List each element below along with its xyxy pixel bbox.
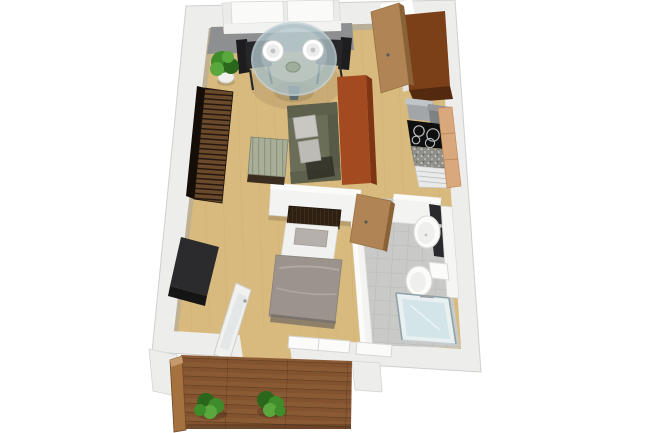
olive-sofa-pillow2 [298,139,321,163]
sink-drain [425,234,428,237]
shower-handle [420,296,434,297]
floorplan-render [0,0,650,433]
deck-plant-right-f4 [275,406,286,417]
dinner-plate-right [303,40,324,61]
balcony-door-handle [243,299,246,302]
white-sofa-cushion-right [287,0,334,22]
bathroom-door-knob [364,220,367,223]
deck-plant-left-f4 [194,404,206,416]
plate-right-center [311,48,316,53]
deck-edge-shading [184,424,351,429]
balcony-wall-stub-right [352,361,382,392]
balcony [170,355,352,432]
bathroom-door-open [350,194,395,252]
entry-door-knob [386,53,389,56]
orange-wardrobe [337,75,377,185]
plate-left-center [271,49,276,54]
coffee-table-top [248,137,288,177]
dinner-plate-left [263,41,284,62]
olive-sofa-pillow1 [293,115,318,139]
white-sofa-cushion-left [231,1,284,24]
toilet-seat [410,272,426,292]
table-centerpiece [286,62,300,72]
plant-foliage4 [222,51,234,63]
sink-bowl [418,222,435,244]
window-sill-right [356,342,392,357]
striped-coffee-table [247,137,288,185]
black-cooktop [407,120,445,149]
glass-shower [396,293,456,344]
olive-sofa [287,102,341,184]
plant-foliage3 [210,62,224,76]
wardrobe-top [337,75,371,185]
floorplan-svg [0,0,650,433]
balcony-threshold [239,330,292,362]
bed-pillow [294,228,328,247]
